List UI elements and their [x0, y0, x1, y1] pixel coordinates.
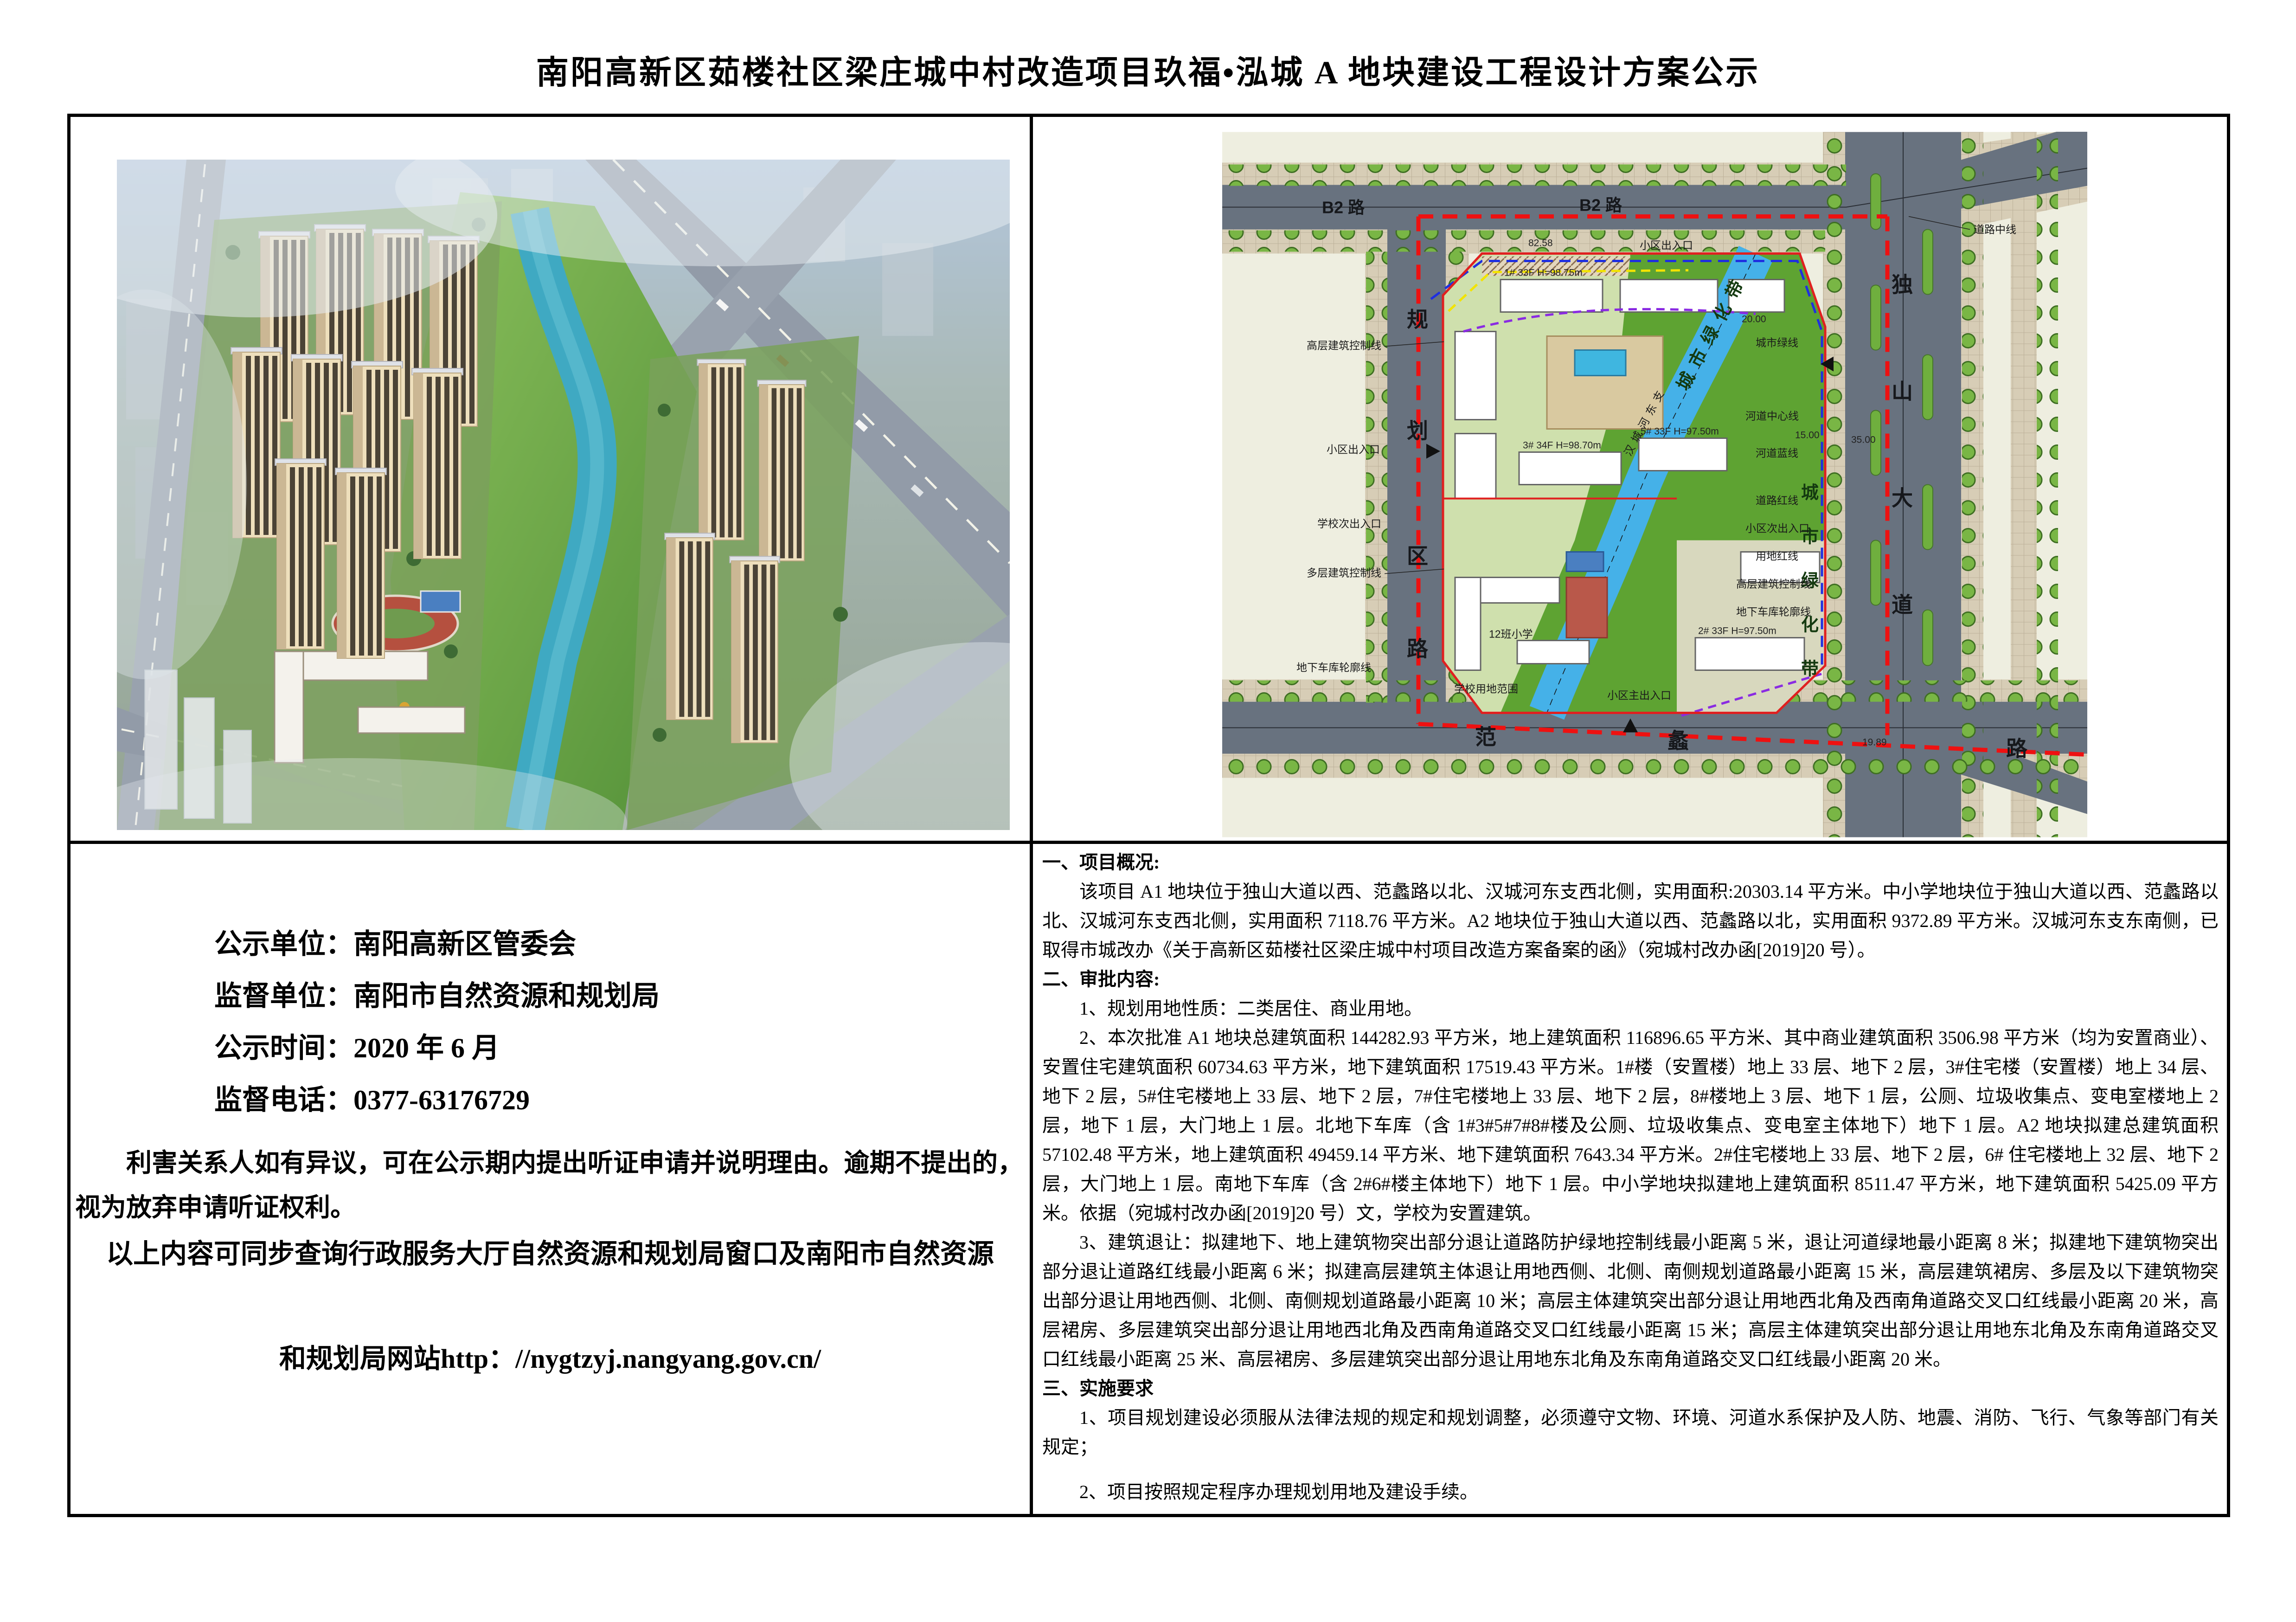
svg-text:用地红线: 用地红线 [1756, 550, 1798, 562]
section1-title: 一、项目概况: [1042, 848, 2219, 877]
svg-text:高层建筑控制线: 高层建筑控制线 [1307, 340, 1381, 352]
objection-paragraph: 利害关系人如有异议，可在公示期内提出听证申请并说明理由。逾期不提出的，视为放弃申… [75, 1141, 1023, 1230]
project-details-text: 一、项目概况: 该项目 A1 地块位于独山大道以西、范蠡路以北、汉城河东支西北侧… [1042, 848, 2219, 1506]
svg-text:20.00: 20.00 [1742, 314, 1766, 325]
publicity-time-line: 公示时间：2020 年 6 月 [214, 1022, 660, 1074]
site-plan-image: B2 路 B2 路 独 山 大 道 规 划 区 路 范 蠡 路 城市绿化带 [1222, 132, 2087, 837]
svg-text:2# 33F H=97.50m: 2# 33F H=97.50m [1698, 626, 1777, 637]
section2-item3: 3、建筑退让：拟建地下、地上建筑物突出部分退让道路防护绿地控制线最小距离 5 米… [1042, 1228, 2219, 1374]
svg-text:化: 化 [1801, 616, 1819, 635]
notice-table: B2 路 B2 路 独 山 大 道 规 划 区 路 范 蠡 路 城市绿化带 [67, 114, 2230, 1517]
svg-text:河道蓝线: 河道蓝线 [1756, 447, 1798, 459]
aerial-render-image [117, 160, 1010, 830]
svg-text:5# 33F H=97.50m: 5# 33F H=97.50m [1641, 426, 1719, 437]
aerial-render-cell [71, 117, 1030, 841]
publicity-unit-line: 公示单位：南阳高新区管委会 [214, 918, 660, 970]
svg-text:划: 划 [1407, 419, 1428, 443]
svg-text:15.00: 15.00 [1795, 430, 1820, 441]
supervision-phone-value: 0377-63176729 [353, 1085, 530, 1115]
svg-text:道路中线: 道路中线 [1974, 224, 2016, 236]
query-channels-line1: 以上内容可同步查询行政服务大厅自然资源和规划局窗口及南阳市自然资源 [71, 1232, 1030, 1271]
svg-text:蠡: 蠡 [1667, 729, 1689, 753]
notice-info-cell: 公示单位：南阳高新区管委会 监督单位：南阳市自然资源和规划局 公示时间：2020… [71, 844, 1030, 1514]
svg-text:道: 道 [1892, 593, 1913, 617]
svg-text:小区出入口: 小区出入口 [1327, 444, 1380, 456]
svg-text:小区主出入口: 小区主出入口 [1607, 689, 1671, 702]
svg-text:1# 33F H=98.75m: 1# 33F H=98.75m [1504, 268, 1583, 278]
svg-text:地下车库轮廓线: 地下车库轮廓线 [1736, 606, 1811, 618]
section2-item2: 2、本次批准 A1 地块总建筑面积 144282.93 平方米，地上建筑面积 1… [1042, 1023, 2219, 1228]
svg-text:路: 路 [2006, 737, 2028, 761]
supervision-unit-value: 南阳市自然资源和规划局 [353, 981, 660, 1011]
section2-title: 二、审批内容: [1042, 965, 2219, 994]
section3-item1: 1、项目规划建设必须服从法律法规的规定和规划调整，必须遵守文物、环境、河道水系保… [1042, 1403, 2219, 1461]
publicity-time-label: 公示时间： [214, 1032, 353, 1063]
svg-text:城: 城 [1801, 483, 1819, 503]
road-label-b2-east: B2 路 [1579, 196, 1623, 215]
svg-text:路: 路 [1407, 637, 1429, 661]
publicity-unit-value: 南阳高新区管委会 [353, 929, 576, 959]
svg-text:道路红线: 道路红线 [1756, 495, 1798, 507]
page-title: 南阳高新区茹楼社区梁庄城中村改造项目玖福•泓城 A 地块建设工程设计方案公示 [0, 46, 2296, 93]
section2-item1: 1、规划用地性质：二类居住、商业用地。 [1042, 994, 2219, 1023]
svg-text:城市绿线: 城市绿线 [1756, 337, 1798, 349]
svg-text:大: 大 [1892, 486, 1913, 510]
supervision-phone-line: 监督电话：0377-63176729 [214, 1074, 660, 1126]
supervision-phone-label: 监督电话： [214, 1084, 353, 1115]
svg-text:小区次出入口: 小区次出入口 [1745, 522, 1809, 534]
svg-text:12班小学: 12班小学 [1489, 628, 1533, 640]
svg-text:82.58: 82.58 [1528, 238, 1553, 249]
svg-text:地下车库轮廓线: 地下车库轮廓线 [1296, 662, 1371, 674]
svg-text:多层建筑控制线: 多层建筑控制线 [1307, 567, 1381, 579]
project-details-cell: 一、项目概况: 该项目 A1 地块位于独山大道以西、范蠡路以北、汉城河东支西北侧… [1033, 844, 2227, 1514]
svg-text:高层建筑控制线: 高层建筑控制线 [1736, 578, 1811, 590]
svg-text:19.89: 19.89 [1862, 737, 1887, 748]
svg-text:学校次出入口: 学校次出入口 [1317, 518, 1381, 530]
table-horizontal-divider [71, 841, 2227, 844]
notice-info-block: 公示单位：南阳高新区管委会 监督单位：南阳市自然资源和规划局 公示时间：2020… [214, 918, 660, 1126]
section1-body: 该项目 A1 地块位于独山大道以西、范蠡路以北、汉城河东支西北侧，实用面积:20… [1042, 877, 2219, 965]
publicity-unit-label: 公示单位： [214, 928, 353, 959]
supervision-unit-line: 监督单位：南阳市自然资源和规划局 [214, 970, 660, 1022]
section3-title: 三、实施要求 [1042, 1374, 2219, 1403]
section3-item2: 2、项目按照规定程序办理规划用地及建设手续。 [1042, 1477, 2219, 1506]
svg-text:山: 山 [1892, 380, 1913, 404]
svg-text:规: 规 [1407, 308, 1428, 332]
svg-text:35.00: 35.00 [1851, 435, 1876, 445]
svg-text:独: 独 [1892, 273, 1913, 297]
road-label-b2-west: B2 路 [1322, 198, 1365, 217]
svg-text:区: 区 [1407, 544, 1428, 568]
table-vertical-divider [1030, 117, 1033, 1514]
svg-text:3# 34F H=98.70m: 3# 34F H=98.70m [1523, 440, 1601, 451]
svg-text:带: 带 [1801, 660, 1819, 679]
svg-text:范: 范 [1475, 725, 1496, 749]
svg-text:小区出入口: 小区出入口 [1640, 239, 1693, 251]
publicity-time-value: 2020 年 6 月 [353, 1033, 500, 1063]
svg-text:学校用地范围: 学校用地范围 [1454, 683, 1518, 695]
site-plan-cell: B2 路 B2 路 独 山 大 道 规 划 区 路 范 蠡 路 城市绿化带 [1033, 117, 2227, 841]
supervision-unit-label: 监督单位： [214, 980, 353, 1011]
svg-text:河道中心线: 河道中心线 [1745, 410, 1799, 422]
query-channels-line2: 和规划局网站http：//nygtzyj.nangyang.gov.cn/ [71, 1337, 1030, 1376]
